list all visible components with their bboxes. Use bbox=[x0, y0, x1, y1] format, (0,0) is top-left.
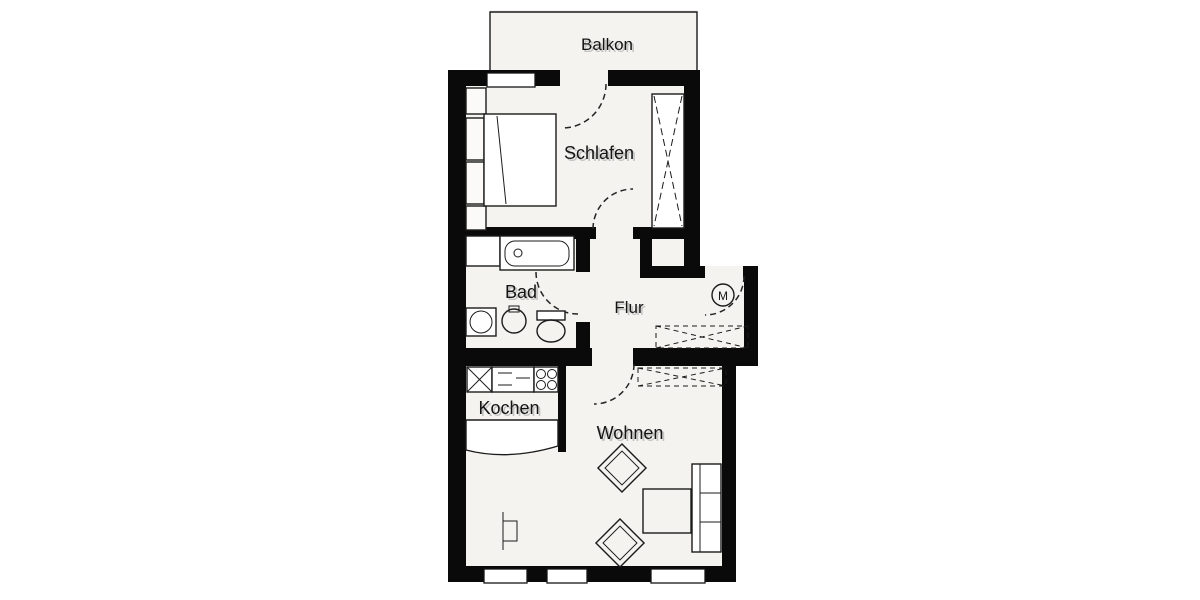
sofa-body bbox=[692, 464, 721, 552]
room-label-bad: Bad bbox=[505, 282, 537, 302]
bathtub-icon bbox=[500, 236, 574, 270]
meter-letter: M bbox=[718, 289, 728, 303]
window-icon bbox=[487, 73, 535, 87]
wardrobe-icon bbox=[652, 94, 684, 228]
sofa-icon bbox=[692, 464, 721, 552]
wall-segment bbox=[448, 348, 592, 366]
outside-notch-top-right bbox=[700, 70, 758, 266]
outside-notch-bottom-right bbox=[736, 366, 758, 582]
kitchen-bar-icon bbox=[466, 420, 558, 455]
room-label-schlafen: Schlafen bbox=[564, 143, 634, 163]
nightstand-icon bbox=[466, 206, 486, 230]
bed-pillow-icon bbox=[466, 118, 484, 160]
washbasin-icon bbox=[466, 308, 496, 336]
washing-machine-icon bbox=[466, 236, 500, 266]
kitchen-sink-icon bbox=[467, 367, 492, 392]
wall-segment bbox=[640, 266, 705, 278]
window-icon bbox=[651, 569, 705, 583]
wall-segment bbox=[576, 239, 590, 272]
room-label-kochen: Kochen bbox=[478, 398, 539, 418]
stove-icon bbox=[534, 367, 558, 392]
wall-segment bbox=[684, 70, 700, 278]
window-icon bbox=[484, 569, 527, 583]
counter-body bbox=[492, 367, 534, 392]
wall-segment bbox=[633, 348, 758, 366]
bed-pillow-icon bbox=[466, 162, 484, 204]
window-icon bbox=[547, 569, 587, 583]
room-label-wohnen: Wohnen bbox=[597, 423, 664, 443]
bed-icon bbox=[484, 114, 556, 206]
wall-segment bbox=[448, 70, 466, 582]
floor-plan-page: M bbox=[0, 0, 1200, 600]
floor-plan: M bbox=[0, 0, 1200, 600]
wall-segment bbox=[722, 366, 736, 582]
room-label-balkon: Balkon bbox=[581, 35, 633, 54]
room-label-flur: Flur bbox=[614, 298, 644, 317]
nightstand-icon bbox=[466, 88, 486, 114]
toilet-tank bbox=[537, 311, 565, 320]
kitchen-counter-icon bbox=[492, 367, 534, 392]
wall-segment bbox=[558, 366, 566, 452]
